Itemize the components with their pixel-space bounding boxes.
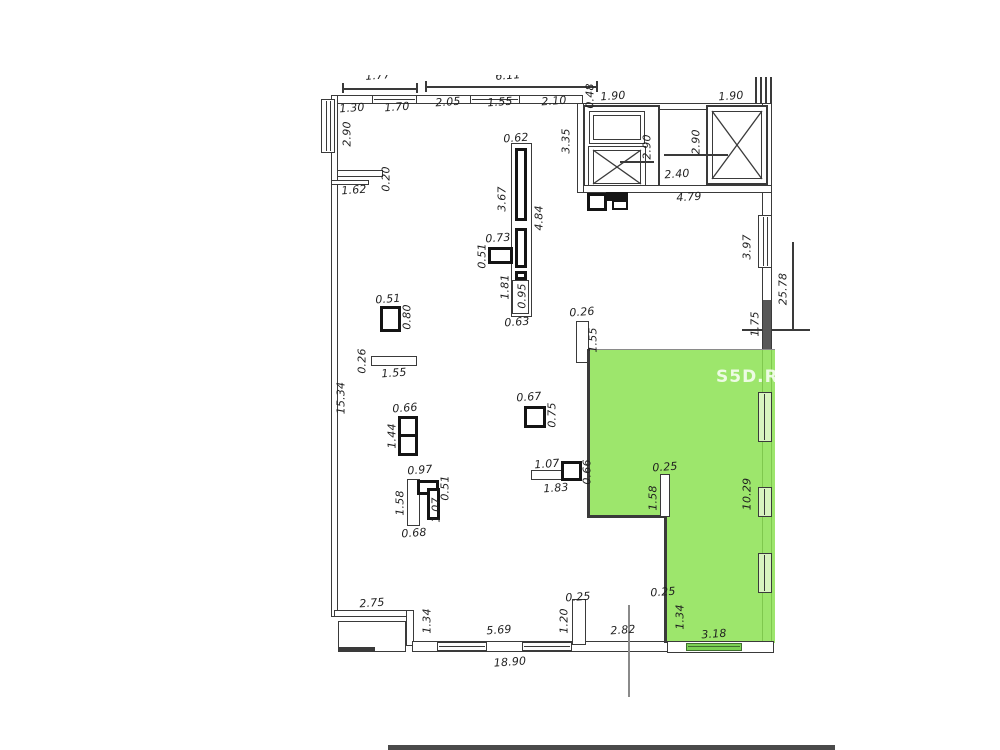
dim-label: 2.40 bbox=[664, 167, 690, 182]
dim-label-clipped: 6.11 bbox=[488, 75, 528, 83]
dim-label: 1.20 bbox=[558, 608, 571, 633]
dim-label: 0.25 bbox=[652, 460, 678, 475]
dimension-line bbox=[425, 86, 597, 88]
shelf bbox=[371, 356, 417, 366]
dimension-line bbox=[342, 88, 418, 90]
dim-label: 2.05 bbox=[435, 95, 461, 110]
watermark: S5D.RU bbox=[716, 367, 794, 387]
dim-label: 0.48 bbox=[584, 83, 597, 108]
dim-label: 1.90 bbox=[718, 89, 744, 104]
wall bbox=[337, 170, 383, 177]
dim-label: 2.90 bbox=[341, 121, 354, 146]
dim-label: 0.66 bbox=[581, 459, 594, 484]
partition-core bbox=[515, 271, 527, 280]
dimension-line bbox=[342, 83, 344, 93]
dim-label: 1.83 bbox=[543, 481, 569, 496]
duct-shaft bbox=[612, 200, 628, 210]
wall-hatch bbox=[770, 77, 772, 103]
column bbox=[561, 461, 582, 481]
dim-label: 3.67 bbox=[496, 186, 509, 211]
leader-line bbox=[620, 161, 654, 163]
wall-hatch bbox=[765, 77, 767, 103]
column-divider bbox=[401, 434, 415, 437]
dim-label: 1.34 bbox=[674, 604, 687, 629]
dim-label: 0.95 bbox=[516, 283, 529, 308]
column bbox=[524, 406, 546, 428]
window-glazing bbox=[763, 217, 764, 266]
dim-label: 1.81 bbox=[499, 274, 512, 299]
dim-label: 1.55 bbox=[487, 95, 513, 110]
dim-label: 1.34 bbox=[421, 608, 434, 633]
wall-slot bbox=[660, 474, 670, 517]
dim-label: 1.07 bbox=[534, 457, 560, 472]
wall bbox=[587, 515, 667, 518]
column bbox=[380, 306, 401, 332]
dim-label: 2.90 bbox=[641, 134, 654, 159]
elevator-x-icon bbox=[712, 111, 762, 179]
wall-hatch bbox=[760, 77, 762, 103]
wall bbox=[587, 349, 590, 518]
dim-label: 0.75 bbox=[546, 402, 559, 427]
window-glazing bbox=[688, 646, 740, 647]
dim-label: 2.75 bbox=[359, 596, 385, 611]
window-glazing bbox=[764, 394, 765, 440]
dim-label: 4.84 bbox=[533, 205, 546, 230]
centerline bbox=[628, 605, 630, 697]
dimension-line bbox=[425, 81, 427, 92]
shaft-cell bbox=[593, 115, 641, 140]
dim-label: 1.58 bbox=[647, 485, 660, 510]
floor-plan: S5D.RU 1.77 6.11 1.30 1.70 2.05 1.55 2.1… bbox=[0, 0, 1000, 750]
window bbox=[758, 215, 772, 268]
wall bbox=[577, 103, 584, 193]
wall-hatch bbox=[755, 77, 757, 103]
dim-label: 2.10 bbox=[541, 94, 567, 109]
dim-label: 1.07 bbox=[430, 497, 443, 522]
dim-label: 0.26 bbox=[356, 348, 369, 373]
window-glazing bbox=[439, 646, 485, 647]
dim-label: 25.78 bbox=[777, 273, 790, 306]
wall bbox=[590, 349, 775, 350]
dim-label: 1.55 bbox=[381, 366, 407, 381]
wall-stub bbox=[572, 599, 586, 645]
window-glazing bbox=[764, 555, 765, 591]
dim-label: 0.25 bbox=[650, 585, 676, 600]
dim-label: 0.67 bbox=[516, 390, 542, 405]
dim-label: 18.90 bbox=[493, 654, 526, 669]
dim-label: 0.97 bbox=[407, 463, 433, 478]
dim-label: 15.34 bbox=[335, 382, 348, 415]
dim-label-clipped: 1.77 bbox=[358, 75, 398, 83]
dim-label: 0.63 bbox=[504, 315, 530, 330]
window bbox=[321, 99, 335, 153]
dim-label: 0.68 bbox=[401, 526, 427, 541]
partition-core bbox=[515, 228, 527, 268]
dim-label: 1.44 bbox=[386, 423, 399, 448]
window-glazing bbox=[767, 217, 768, 266]
dim-label: 2.82 bbox=[610, 623, 636, 638]
wall-stub bbox=[488, 247, 513, 264]
dim-label: 1.75 bbox=[749, 311, 762, 336]
dim-label: 0.26 bbox=[569, 305, 595, 320]
dim-label: 0.80 bbox=[401, 304, 414, 329]
duct-shaft bbox=[587, 193, 607, 211]
dim-label: 10.29 bbox=[741, 478, 754, 511]
dimension-line bbox=[792, 242, 794, 330]
balcony-edge bbox=[339, 647, 375, 651]
dim-label: 1.90 bbox=[600, 89, 626, 104]
dim-label: 4.79 bbox=[676, 190, 702, 205]
dim-label: 1.70 bbox=[384, 100, 410, 115]
dim-label: 2.90 bbox=[690, 129, 703, 154]
window-glazing bbox=[326, 101, 327, 151]
dim-label: 5.69 bbox=[486, 623, 512, 638]
dim-label: 1.55 bbox=[587, 327, 600, 352]
dim-label: 1.62 bbox=[341, 183, 367, 198]
dim-label: 0.66 bbox=[392, 401, 418, 416]
window-glazing bbox=[330, 101, 331, 151]
wall-dark-segment bbox=[763, 300, 771, 350]
dim-label: 3.18 bbox=[701, 627, 727, 642]
dim-label: 1.30 bbox=[339, 101, 365, 116]
wall bbox=[334, 610, 412, 617]
dim-label: 1.58 bbox=[394, 490, 407, 515]
page-edge-bar bbox=[388, 745, 835, 750]
window-glazing bbox=[764, 489, 765, 515]
dim-label: 0.62 bbox=[503, 131, 529, 146]
elevator-x-icon bbox=[593, 150, 641, 184]
wall bbox=[664, 517, 667, 643]
window-glazing bbox=[524, 646, 570, 647]
dim-label: 3.97 bbox=[741, 234, 754, 259]
dim-label: 0.25 bbox=[565, 590, 591, 605]
dimension-line bbox=[416, 83, 418, 93]
dim-label: 3.35 bbox=[560, 128, 573, 153]
dim-label: 0.51 bbox=[476, 243, 489, 268]
dim-label: 0.20 bbox=[380, 166, 393, 191]
partition-core bbox=[515, 148, 527, 221]
dim-label: 0.51 bbox=[375, 292, 401, 307]
dim-label: 0.73 bbox=[485, 231, 511, 246]
